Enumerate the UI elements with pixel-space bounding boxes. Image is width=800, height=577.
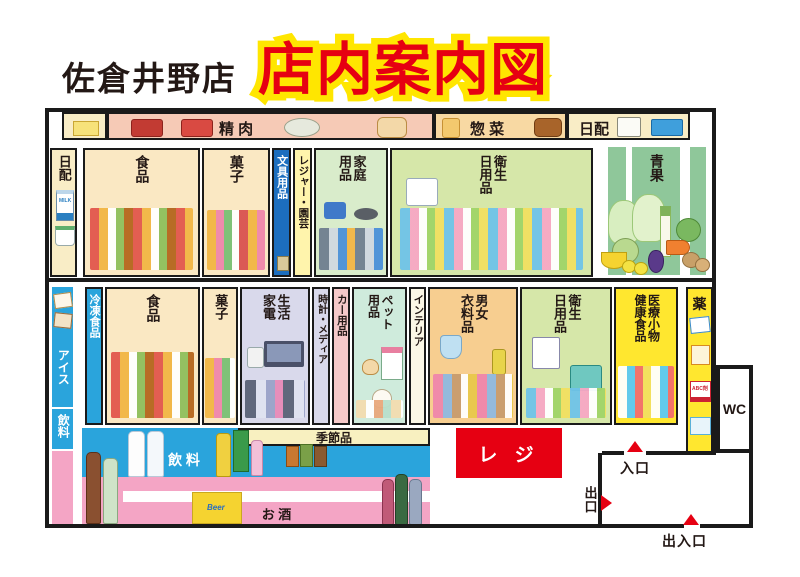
wine-bottle-icon bbox=[382, 479, 394, 525]
cat-icon bbox=[362, 359, 379, 375]
checkout-register: レ ジ bbox=[456, 428, 562, 478]
health-medical-label: 医療小物 健康食品 bbox=[633, 294, 660, 342]
drinks-shelf-label: 飲 料 bbox=[168, 450, 200, 470]
wc-label: WC bbox=[723, 401, 746, 417]
wall bbox=[45, 108, 49, 528]
produce-label: 青果 bbox=[648, 154, 664, 182]
shopping-bag-icon bbox=[532, 337, 560, 369]
media-label: 時計・メディア bbox=[315, 294, 326, 364]
wall bbox=[598, 453, 602, 528]
clothing-label: 男女 衣料品 bbox=[458, 294, 487, 333]
pot-icon bbox=[247, 347, 264, 368]
section-sweets-1: 菓子 bbox=[202, 148, 270, 277]
pan-icon bbox=[354, 208, 378, 220]
sweets-1-label: 菓子 bbox=[228, 155, 244, 183]
eggplant-icon bbox=[648, 250, 664, 273]
main-gate-arrow-icon bbox=[683, 514, 699, 525]
page-title-text: 店内案内図 bbox=[258, 24, 548, 106]
lemon-icon bbox=[634, 262, 648, 275]
beer-case-text: Beer bbox=[207, 503, 225, 512]
appliances-label: 生活 家電 bbox=[260, 294, 289, 320]
dairy-corner-shelf bbox=[62, 112, 107, 140]
chicken-icon bbox=[377, 117, 407, 138]
pets-label: ペット 用品 bbox=[366, 294, 393, 330]
stationery-label: 文具用品 bbox=[275, 155, 287, 199]
sausage-plate-icon bbox=[284, 118, 320, 137]
boot-icon bbox=[492, 349, 506, 375]
milk-text: MILK bbox=[59, 198, 71, 204]
seasonal-label: 季節品 bbox=[316, 429, 352, 446]
alcohol-label: お 酒 bbox=[262, 504, 292, 523]
daily-side-label: 日配 bbox=[56, 155, 71, 181]
section-drugs: 薬 ABC剤 bbox=[686, 287, 713, 453]
dress-icon bbox=[440, 335, 462, 359]
section-household: 家庭 用品 bbox=[314, 148, 388, 277]
juice-bottle-icon bbox=[216, 433, 231, 477]
meat-icon bbox=[181, 119, 213, 137]
water-bottle-icon bbox=[147, 431, 164, 477]
ice-pack-icon bbox=[53, 312, 72, 329]
seasonal-shelf: 季節品 bbox=[238, 428, 430, 446]
meat-label: 精 肉 bbox=[219, 118, 253, 139]
food-products-illustration bbox=[90, 208, 194, 270]
household-label: 家庭 用品 bbox=[336, 155, 365, 181]
wall bbox=[45, 108, 716, 112]
section-hygiene-1: 衛生 日用品 bbox=[390, 148, 593, 277]
household-products-illustration bbox=[319, 228, 383, 270]
section-food-1: 食品 bbox=[83, 148, 200, 277]
hygiene-2-label: 衛生 日用品 bbox=[551, 294, 580, 333]
sake-bottle-icon bbox=[86, 452, 101, 524]
ice-cream-strip: アイス bbox=[52, 287, 73, 407]
wc-room: WC bbox=[716, 365, 753, 453]
can-icon bbox=[300, 444, 313, 467]
milk-carton-icon: MILK bbox=[56, 190, 74, 221]
meat-section: 精 肉 bbox=[107, 112, 434, 140]
sweets-2-label: 菓子 bbox=[213, 294, 228, 320]
drinks-side-strip: 飲料 bbox=[52, 409, 73, 449]
section-pets: ペット 用品 bbox=[352, 287, 407, 425]
deli-section: 惣 菜 bbox=[434, 112, 567, 140]
drinks-side-label: 飲料 bbox=[56, 414, 69, 449]
wall bbox=[45, 524, 684, 528]
wall bbox=[646, 451, 716, 455]
fried-chicken-icon bbox=[534, 118, 562, 137]
abc-medicine-text: ABC剤 bbox=[692, 385, 708, 392]
can-icon bbox=[314, 446, 327, 467]
section-clothing: 男女 衣料品 bbox=[428, 287, 518, 425]
section-sweets-2: 菓子 bbox=[202, 287, 238, 425]
interior-label: インテリア bbox=[412, 294, 424, 347]
section-frozen: 冷凍食品 bbox=[85, 287, 103, 425]
medicine-box-icon bbox=[691, 345, 710, 365]
tempura-icon bbox=[442, 118, 460, 138]
hygiene-products-illustration bbox=[400, 208, 583, 270]
section-hygiene-2: 衛生 日用品 ABC剤 bbox=[520, 287, 612, 425]
exit-arrow-icon bbox=[601, 495, 612, 511]
medicine-box-icon: ABC剤 bbox=[690, 381, 711, 402]
beer-case-icon: Beer bbox=[192, 492, 242, 524]
wine-bottle-icon bbox=[409, 479, 422, 525]
wall bbox=[749, 453, 753, 528]
yogurt-icon bbox=[55, 226, 75, 246]
soda-bottle-icon bbox=[251, 440, 263, 476]
tea-box-icon bbox=[233, 430, 249, 472]
ice-label: アイス bbox=[56, 349, 69, 385]
hygiene-1-label: 衛生 日用品 bbox=[477, 155, 506, 194]
drugs-label: 薬 bbox=[693, 294, 707, 314]
main-gate-label: 出入口 bbox=[662, 531, 707, 551]
car-goods-label: カー用品 bbox=[335, 294, 347, 336]
side-shelf-pink bbox=[52, 451, 73, 524]
store-map-canvas: 佐倉井野店 店内案内図 店内案内図 精 肉 惣 菜 日配 日配 MILK アイス bbox=[0, 0, 800, 577]
potato-icon bbox=[695, 258, 710, 272]
meat-icon bbox=[131, 119, 163, 137]
hygiene-2-products-illustration bbox=[526, 388, 607, 418]
section-leisure-garden: レジャー・園芸 bbox=[293, 148, 312, 277]
store-name: 佐倉井野店 bbox=[62, 52, 237, 100]
shochu-bottle-icon bbox=[103, 458, 118, 524]
shelf-pink-mid bbox=[82, 477, 430, 491]
entrance-label: 入口 bbox=[620, 458, 650, 478]
entrance-arrow-icon bbox=[627, 441, 643, 452]
wall bbox=[700, 524, 753, 528]
toilet-paper-icon bbox=[406, 178, 438, 206]
sweets-products-illustration bbox=[207, 210, 266, 270]
can-icon bbox=[286, 446, 299, 467]
wall bbox=[45, 278, 716, 282]
deli-label: 惣 菜 bbox=[470, 118, 504, 139]
medicine-box-icon bbox=[689, 316, 711, 334]
tv-icon bbox=[264, 341, 304, 367]
medicine-box-icon bbox=[690, 417, 711, 435]
section-health-medical: 医療小物 健康食品 bbox=[614, 287, 678, 425]
daily-top-section: 日配 bbox=[567, 112, 690, 140]
exit-label: 出口 bbox=[582, 486, 597, 514]
food-1-label: 食品 bbox=[134, 155, 150, 183]
calculator-icon bbox=[277, 256, 289, 271]
food-2-label: 食品 bbox=[145, 294, 161, 322]
pet-products-illustration bbox=[356, 400, 403, 418]
tshirt-icon bbox=[324, 202, 346, 219]
pet-food-bag-icon bbox=[381, 347, 403, 380]
natto-pack-icon bbox=[617, 117, 641, 137]
ice-pack-icon bbox=[53, 292, 73, 309]
appliance-products-illustration bbox=[245, 380, 306, 418]
water-bottle-icon bbox=[128, 431, 145, 477]
wine-bottle-icon bbox=[395, 474, 408, 525]
section-interior: インテリア bbox=[409, 287, 426, 425]
wall bbox=[602, 451, 624, 455]
section-car-goods: カー用品 bbox=[332, 287, 350, 425]
section-media: 時計・メディア bbox=[312, 287, 330, 425]
frozen-label: 冷凍食品 bbox=[88, 294, 100, 338]
section-appliances: 生活 家電 bbox=[240, 287, 310, 425]
leisure-garden-label: レジャー・園芸 bbox=[297, 155, 309, 229]
clothing-products-illustration bbox=[433, 374, 512, 418]
sweets-2-products-illustration bbox=[205, 358, 234, 418]
food-2-products-illustration bbox=[111, 352, 195, 418]
section-stationery: 文具用品 bbox=[272, 148, 291, 277]
section-food-2: 食品 bbox=[105, 287, 200, 425]
medical-products-illustration bbox=[618, 366, 673, 418]
daily-side-section: 日配 MILK bbox=[50, 148, 77, 277]
butter-icon bbox=[73, 121, 99, 136]
daily-top-label: 日配 bbox=[579, 118, 609, 139]
cabbage-icon bbox=[676, 218, 701, 242]
tofu-pack-icon bbox=[651, 119, 683, 136]
